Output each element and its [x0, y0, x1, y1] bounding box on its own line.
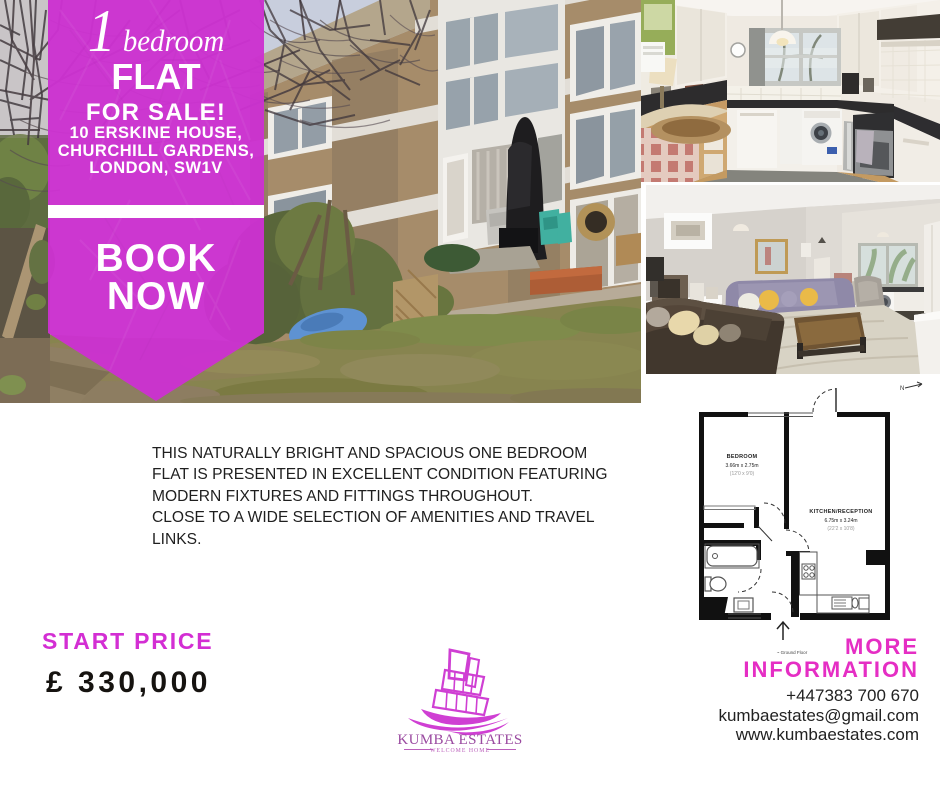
svg-text:WELCOME HOME: WELCOME HOME	[430, 748, 490, 754]
svg-text:BEDROOM: BEDROOM	[727, 454, 758, 460]
svg-text:KITCHEN/RECEPTION: KITCHEN/RECEPTION	[809, 509, 872, 515]
svg-text:(22'2 x 10'8): (22'2 x 10'8)	[827, 526, 855, 532]
svg-text:N: N	[900, 386, 904, 392]
svg-text:KUMBA ESTATES: KUMBA ESTATES	[397, 732, 522, 748]
svg-text:3.66m x 2.75m: 3.66m x 2.75m	[725, 463, 758, 469]
svg-text:6.75m x 3.24m: 6.75m x 3.24m	[824, 518, 857, 524]
svg-text:(12'0 x 9'0): (12'0 x 9'0)	[730, 471, 755, 477]
